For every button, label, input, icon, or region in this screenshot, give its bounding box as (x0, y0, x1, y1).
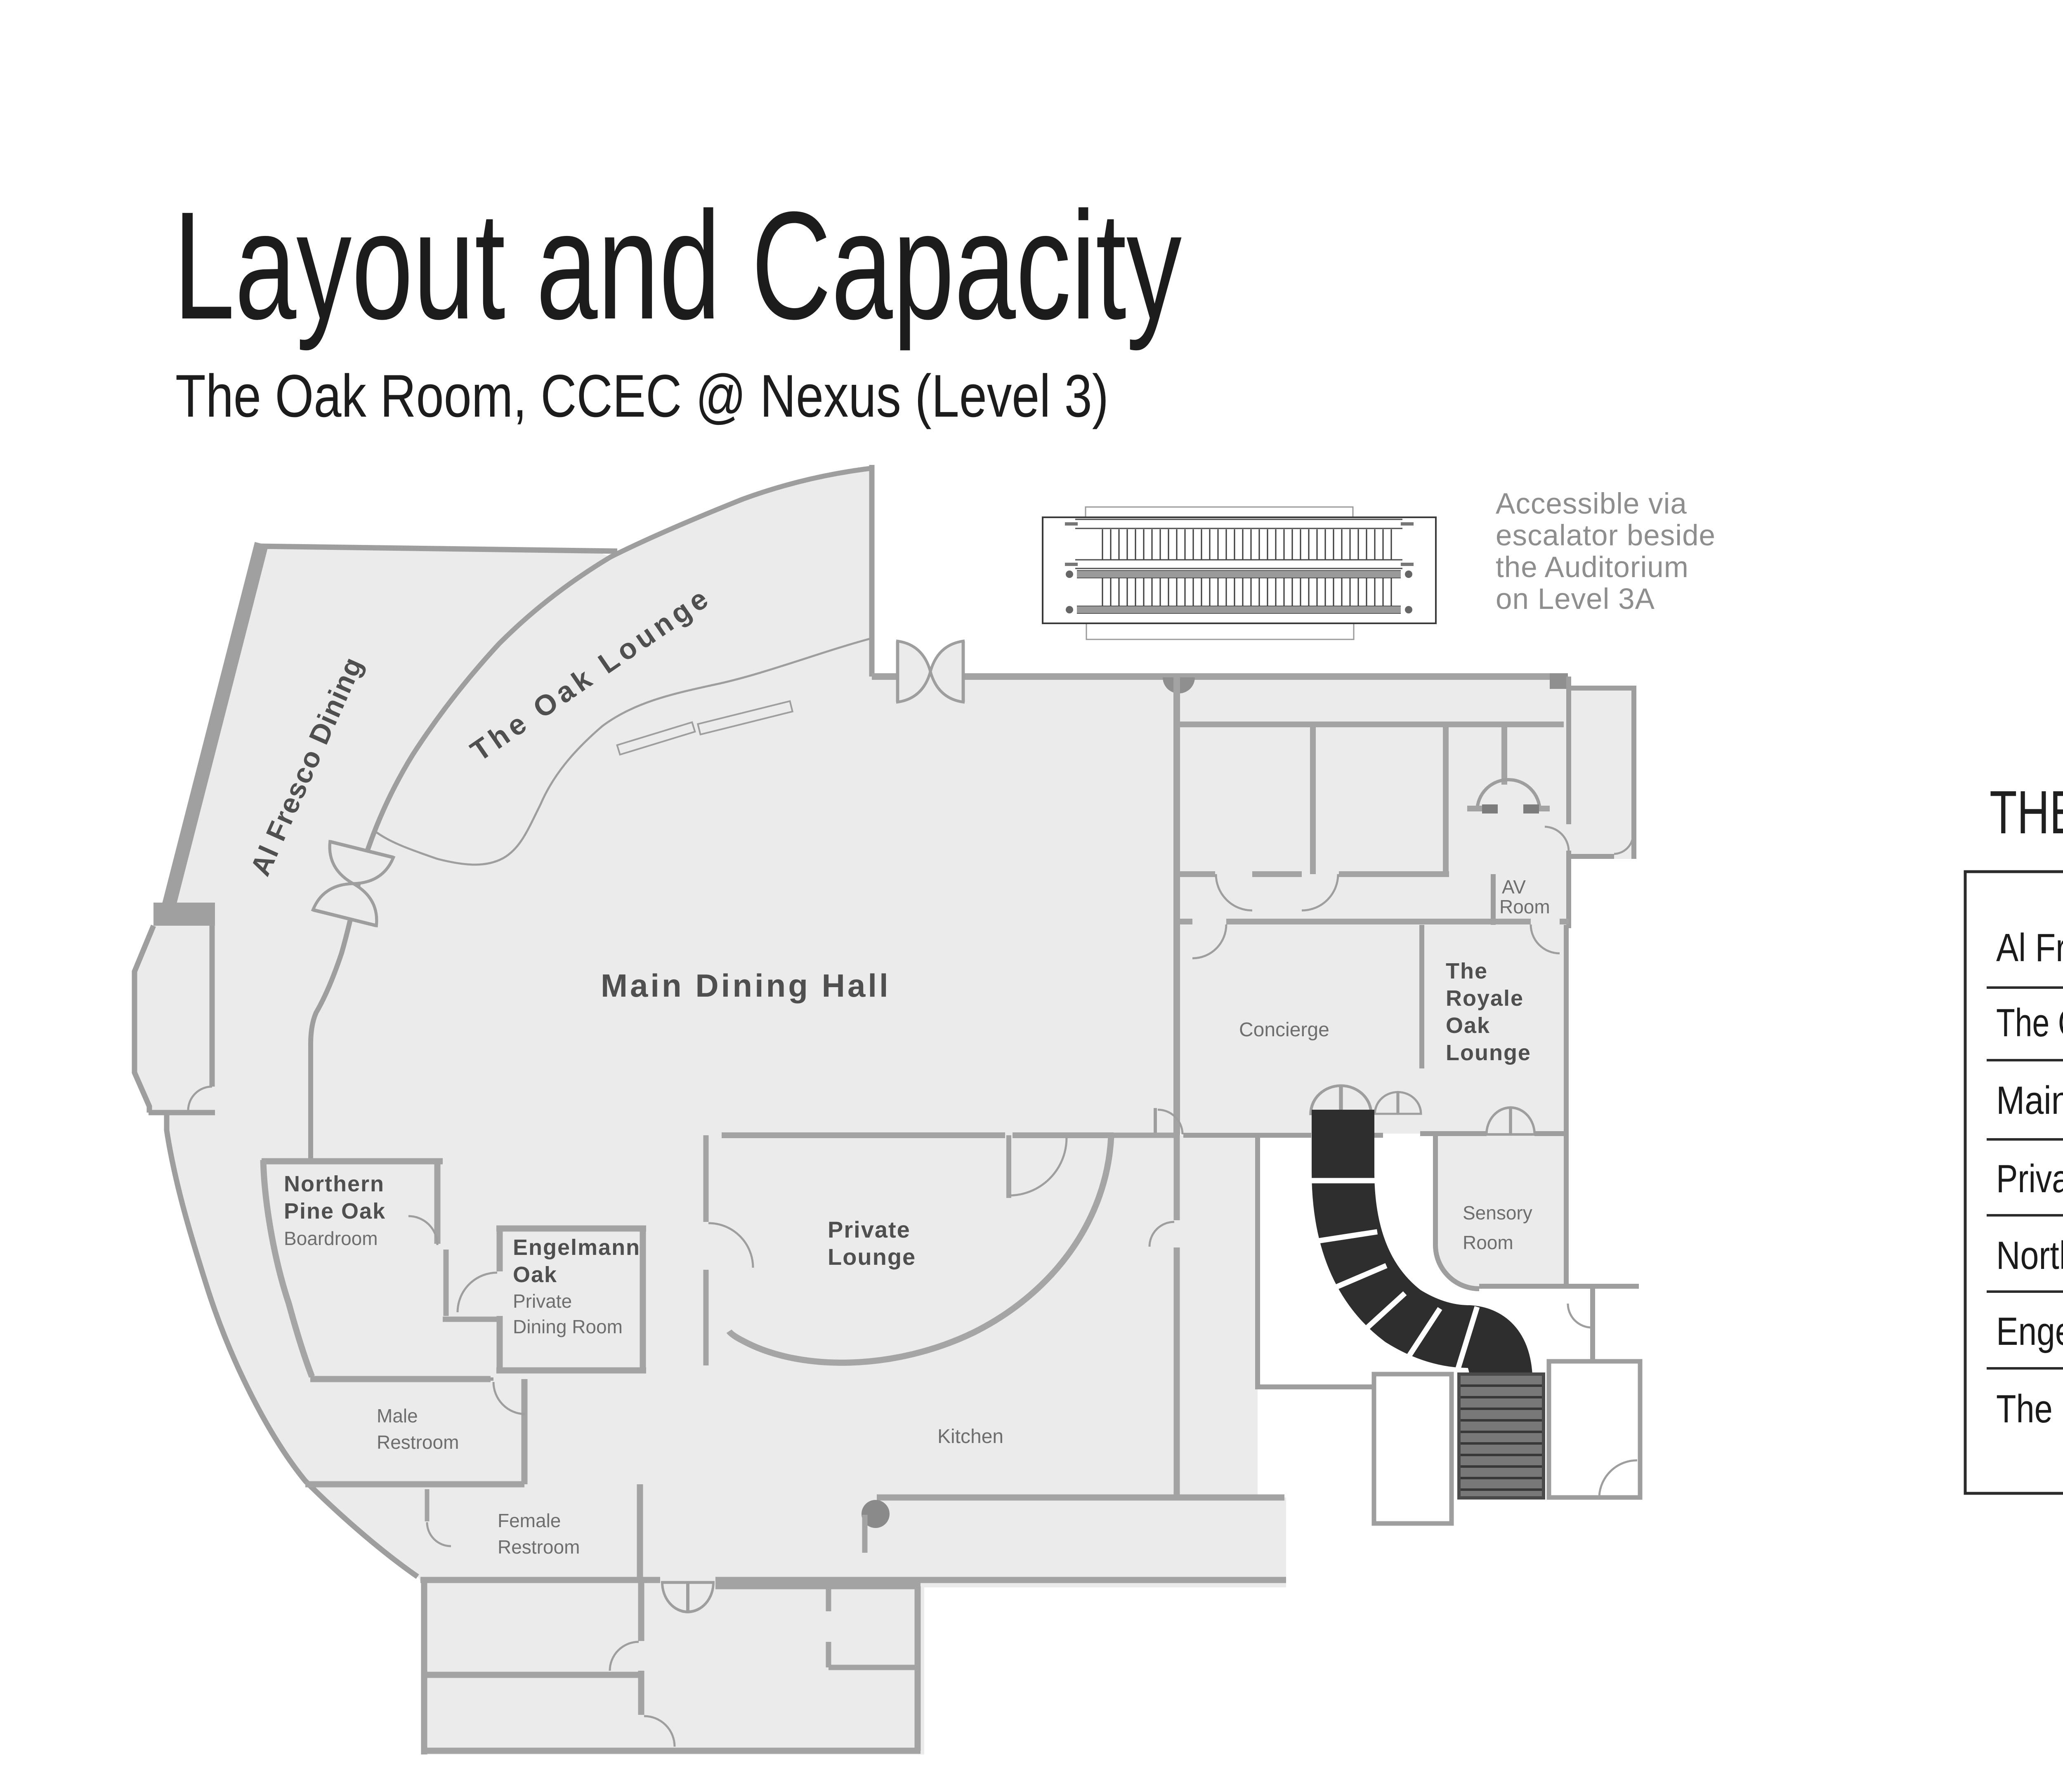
svg-text:Northern: Northern (284, 1172, 385, 1196)
svg-text:Accessible via: Accessible via (1496, 488, 1687, 520)
svg-text:THE OAK ROOM: THE OAK ROOM (1990, 778, 2063, 846)
svg-text:Engelmann: Engelmann (513, 1235, 640, 1260)
svg-text:The Royale Oak Lounge: The Royale Oak Lounge (1996, 1387, 2063, 1431)
svg-text:escalator beside: escalator beside (1496, 519, 1716, 552)
svg-text:Al Fresco Dining: Al Fresco Dining (1996, 926, 2063, 970)
svg-text:on Level 3A: on Level 3A (1496, 583, 1655, 615)
svg-text:Oak: Oak (1446, 1013, 1490, 1038)
svg-text:Restroom: Restroom (498, 1536, 580, 1558)
svg-text:Main Dining Hall: Main Dining Hall (1996, 1078, 2063, 1122)
svg-text:Engelmann Oak: Engelmann Oak (1996, 1309, 2063, 1353)
svg-text:Northern Pine Oak: Northern Pine Oak (1996, 1233, 2063, 1278)
svg-text:Boardroom: Boardroom (284, 1228, 378, 1249)
svg-text:Private: Private (513, 1290, 572, 1312)
svg-text:Sensory: Sensory (1463, 1202, 1532, 1224)
svg-text:Royale: Royale (1446, 986, 1524, 1011)
svg-text:AV: AV (1502, 876, 1526, 898)
svg-text:Main Dining Hall: Main Dining Hall (601, 967, 891, 1004)
svg-text:Private: Private (828, 1217, 911, 1243)
svg-text:The: The (1446, 959, 1488, 983)
svg-text:the Auditorium: the Auditorium (1496, 551, 1689, 584)
svg-text:Restroom: Restroom (377, 1431, 459, 1453)
svg-text:Room: Room (1499, 896, 1550, 917)
svg-text:Private Lounge: Private Lounge (1996, 1157, 2063, 1201)
svg-text:Female: Female (498, 1510, 561, 1531)
svg-text:Kitchen: Kitchen (937, 1426, 1003, 1448)
svg-text:Lounge: Lounge (1446, 1040, 1531, 1065)
svg-text:Pine Oak: Pine Oak (284, 1199, 386, 1224)
svg-text:Room: Room (1463, 1232, 1513, 1253)
svg-text:Layout and Capacity: Layout and Capacity (173, 179, 1182, 352)
svg-text:Concierge: Concierge (1239, 1019, 1329, 1041)
svg-text:The Oak Room, CCEC @ Nexus (Le: The Oak Room, CCEC @ Nexus (Level 3) (175, 362, 1109, 429)
svg-text:Dining Room: Dining Room (513, 1316, 623, 1337)
svg-text:The Oak Lounge: The Oak Lounge (1996, 1001, 2063, 1045)
svg-text:Male: Male (377, 1405, 418, 1427)
svg-text:Lounge: Lounge (828, 1244, 916, 1270)
svg-text:Oak: Oak (513, 1262, 557, 1287)
